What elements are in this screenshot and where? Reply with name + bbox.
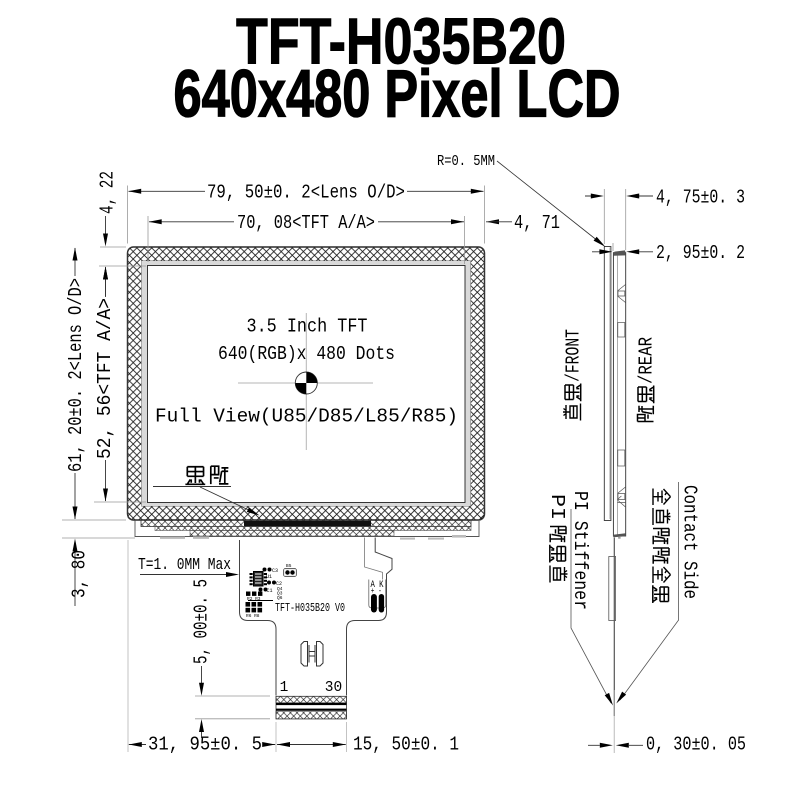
svg-text:PI Stiffener: PI Stiffener (569, 491, 591, 610)
svg-text:Full View(U85/D85/L85/R85): Full View(U85/D85/L85/R85) (155, 406, 458, 428)
svg-text:R=0. 5MM: R=0. 5MM (437, 154, 495, 170)
svg-text:4, 22: 4, 22 (97, 171, 119, 214)
svg-text:15, 50±0. 1: 15, 50±0. 1 (353, 734, 459, 756)
svg-text:70, 08<TFT A/A>: 70, 08<TFT A/A> (237, 212, 375, 234)
svg-text:30: 30 (325, 680, 342, 696)
svg-text:/FRONT: /FRONT (563, 329, 585, 382)
svg-text:52, 56<TFT A/A>: 52, 56<TFT A/A> (94, 298, 116, 459)
svg-text:R2 R3: R2 R3 (247, 596, 261, 602)
svg-text:2, 95±0. 2: 2, 95±0. 2 (656, 242, 745, 264)
svg-text:61, 20±0. 2<Lens O/D>: 61, 20±0. 2<Lens O/D> (65, 278, 87, 472)
svg-text:31, 95±0. 5: 31, 95±0. 5 (148, 734, 262, 756)
svg-text:79, 50±0. 2<Lens O/D>: 79, 50±0. 2<Lens O/D> (207, 182, 405, 204)
svg-text:B5: B5 (286, 563, 292, 569)
svg-text:U1: U1 (266, 574, 272, 580)
svg-text:T=1. 0MM Max: T=1. 0MM Max (138, 556, 231, 575)
svg-text:0, 30±0. 05: 0, 30±0. 05 (646, 734, 746, 756)
svg-text:Q6: Q6 (277, 595, 283, 601)
svg-text:640x480 Pixel LCD: 640x480 Pixel LCD (174, 57, 621, 132)
svg-text:/REAR: /REAR (636, 337, 658, 384)
svg-text:PI: PI (546, 494, 568, 520)
svg-text:5, 00±0. 5: 5, 00±0. 5 (191, 579, 213, 664)
svg-text:TFT-H035B20 V0: TFT-H035B20 V0 (275, 602, 345, 615)
svg-text:3, 80: 3, 80 (69, 550, 91, 598)
svg-text:Contact Side: Contact Side (679, 485, 701, 599)
svg-text:3.5 Inch TFT: 3.5 Inch TFT (247, 316, 368, 338)
svg-text:+ -: + - (371, 587, 382, 596)
svg-text:C3: C3 (272, 568, 278, 574)
svg-text:4, 71: 4, 71 (514, 212, 560, 234)
svg-text:1: 1 (280, 680, 289, 696)
svg-text:C1: C1 (267, 588, 273, 594)
svg-text:4, 75±0. 3: 4, 75±0. 3 (656, 187, 745, 209)
svg-text:R6 R8: R6 R8 (246, 613, 260, 619)
